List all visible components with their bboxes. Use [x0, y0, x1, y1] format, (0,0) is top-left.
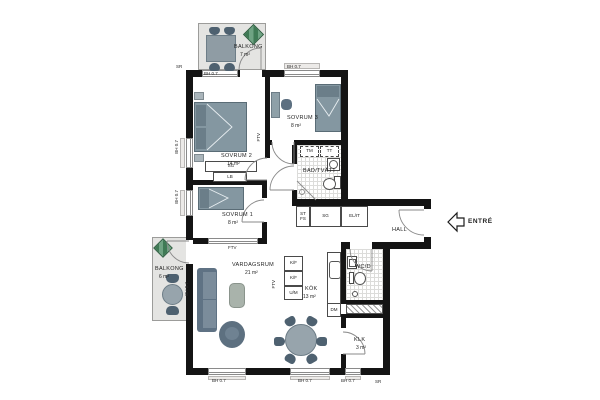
bed-fold-sovrum3 — [317, 99, 339, 116]
room-label-badtvatt: BAD/TVÄTT — [303, 168, 336, 174]
room-area-klk: 3 m² — [356, 345, 366, 351]
bh-label: BH 0.7 — [341, 378, 355, 383]
room-area-sovrum3: 8 m² — [291, 123, 301, 129]
sr-marker: SR — [176, 64, 182, 69]
ftv-label: FTV — [256, 133, 261, 142]
room-label-hall: HALL — [392, 227, 407, 233]
room-area-kok: 13 m² — [303, 294, 316, 300]
entry-label: ENTRÉ — [468, 218, 493, 225]
room-label-vardagsrum: VARDAGSRUM — [232, 262, 274, 268]
room-label-wcd: WC/D — [355, 264, 371, 270]
door-arc-balcony-left — [167, 241, 189, 263]
room-label-balkong-top: BALKONG — [234, 44, 263, 50]
entry-arrow-icon — [448, 213, 464, 231]
door-arc-sovrum3 — [272, 142, 294, 164]
room-label-sovrum1: SOVRUM 1 — [222, 212, 253, 218]
door-arc-sovrum1 — [242, 200, 264, 222]
bh-label: BH 0.7 — [298, 378, 312, 383]
room-area-balkong-left: 6 m² — [159, 274, 169, 280]
door-arc-sovrum2 — [245, 158, 267, 180]
ftv-label: FTV — [271, 280, 276, 289]
room-label-klk: KLK — [354, 337, 365, 343]
shower-drain — [300, 190, 305, 195]
bh-label: BH 0.7 — [174, 140, 179, 154]
bh-label: BH 0.7 — [174, 190, 179, 204]
bh-label: BH 0.7 — [287, 64, 301, 69]
sr-marker: SR — [375, 379, 381, 384]
bh-label: BH 0.7 — [212, 378, 226, 383]
room-area-sovrum2: 14 m² — [227, 161, 240, 167]
room-label-sovrum3: SOVRUM 3 — [287, 115, 318, 121]
ftv-label: FTV — [228, 245, 237, 250]
room-area-vardagsrum: 21 m² — [245, 270, 258, 276]
bed-fold-sovrum1 — [209, 189, 228, 208]
floorplan-canvas: TM TT ST FS SG EL/IT SG LB K/F K/F U/M D… — [0, 0, 600, 400]
room-label-balkong-left: BALKONG — [155, 266, 184, 272]
bed-fold-sovrum2 — [207, 104, 232, 150]
room-label-kok: KÖK — [305, 286, 318, 292]
room-label-sovrum2: SOVRUM 2 — [221, 153, 252, 159]
door-arc-bath — [270, 166, 294, 190]
room-area-balkong-top: 7 m² — [240, 52, 250, 58]
bh-label: BH 0.7 — [204, 71, 218, 76]
room-area-sovrum1: 8 m² — [228, 220, 238, 226]
door-arcs-layer — [0, 0, 600, 400]
bh-label: BH 0.7 — [184, 282, 189, 296]
